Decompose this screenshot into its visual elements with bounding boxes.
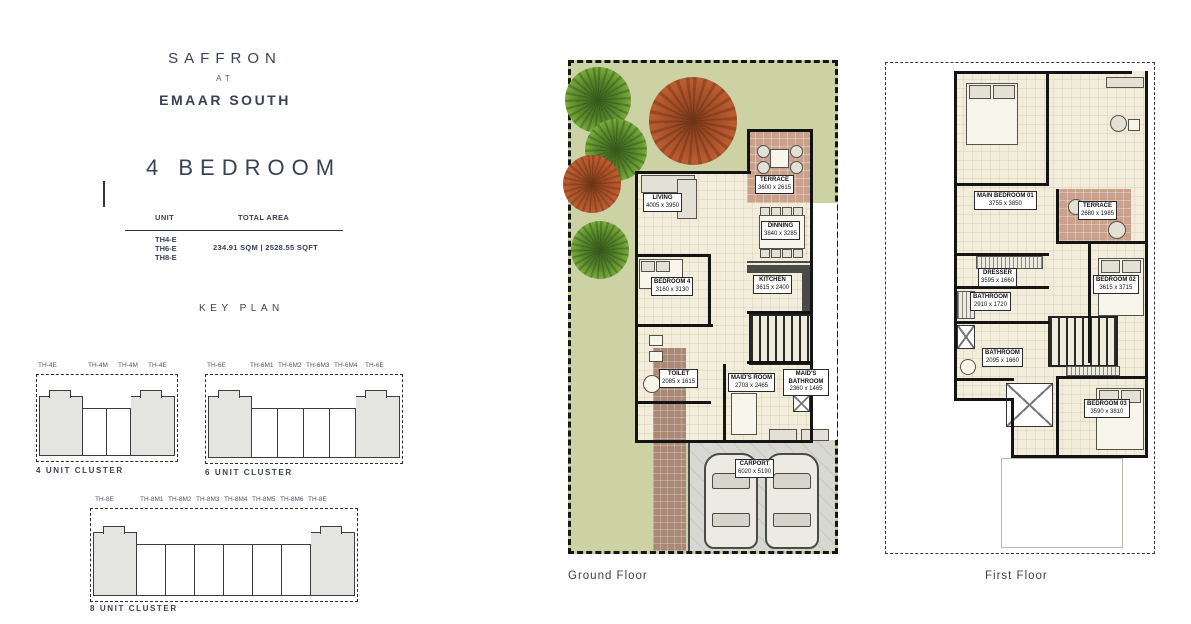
unit-row: TH6-E xyxy=(155,244,177,253)
wall xyxy=(1056,241,1148,244)
cluster-mid-unit xyxy=(83,408,107,456)
dining-chair xyxy=(793,207,803,216)
wall xyxy=(1056,376,1059,455)
unit-label: TH-6E xyxy=(207,362,226,369)
side-margin xyxy=(813,203,837,440)
unit-label: TH-8M1 xyxy=(140,496,163,503)
unit-label: TH-8M2 xyxy=(168,496,191,503)
room-label-carport: CARPORT 6020 x 5190 xyxy=(735,459,774,478)
first-floor-caption: First Floor xyxy=(985,570,1048,582)
wall xyxy=(635,440,813,443)
car-rear-window xyxy=(712,513,750,527)
pillow xyxy=(1101,260,1120,273)
brand-at: AT xyxy=(120,74,330,83)
unit-roof-tab xyxy=(320,526,342,534)
wall xyxy=(635,171,751,174)
wardrobe xyxy=(1066,366,1120,376)
shaft xyxy=(957,325,975,349)
total-area-value: 234.91 SQM | 2528.55 SQFT xyxy=(213,243,318,252)
room-label-main-bedroom: MAIN BEDROOM 01 3755 x 3850 xyxy=(974,191,1037,210)
unit-list: TH4-E TH6-E TH8-E xyxy=(155,235,177,262)
wall xyxy=(1056,376,1148,379)
brand-location: EMAAR SOUTH xyxy=(120,92,330,108)
cluster-mid-unit xyxy=(195,544,224,596)
kitchen-counter xyxy=(802,273,810,311)
cluster4-diagram xyxy=(36,374,178,462)
brand-block: SAFFRON AT EMAAR SOUTH xyxy=(120,50,330,108)
page-title: 4 BEDROOM xyxy=(146,155,341,181)
cluster8-caption: 8 UNIT CLUSTER xyxy=(90,604,178,613)
cluster8-diagram xyxy=(90,508,358,602)
unit-label: TH-8E xyxy=(95,496,114,503)
cluster-end-unit xyxy=(39,396,83,456)
ground-floor-plan: TERRACE 3600 x 2615 LIVING 4005 x 3950 D… xyxy=(568,60,838,554)
wall xyxy=(1088,241,1091,363)
pillow xyxy=(641,261,655,272)
cluster8-unit-labels: TH-8E TH-8M1 TH-8M2 TH-8M3 TH-8M4 TH-8M5… xyxy=(90,496,360,506)
wall xyxy=(1011,398,1014,458)
wall xyxy=(747,129,813,132)
dining-chair xyxy=(771,249,781,258)
room-label-toilet: TOILET 2085 x 1615 xyxy=(659,369,698,388)
room-label-kitchen: KITCHEN 3615 x 2400 xyxy=(753,275,792,294)
pillow xyxy=(993,85,1015,99)
terrace-table xyxy=(770,149,789,168)
cluster-mid-unit xyxy=(107,408,131,456)
cluster-end-unit xyxy=(356,396,400,458)
terrace-chair xyxy=(1108,221,1126,239)
cluster-end-unit xyxy=(131,396,175,456)
staircase xyxy=(1048,316,1118,367)
car-windshield xyxy=(773,473,811,489)
unit-label: TH-8M4 xyxy=(224,496,247,503)
wall xyxy=(1046,74,1049,186)
room-label-dresser: DRESSER 3595 x 1660 xyxy=(978,268,1017,287)
cluster6-unit-labels: TH-6E TH-6M1 TH-6M2 TH-6M3 TH-6M4 TH-6E xyxy=(205,362,405,372)
cluster8-footprint xyxy=(91,532,357,596)
sink-fixture xyxy=(649,351,663,362)
tree-icon xyxy=(563,155,621,213)
cluster-mid-unit xyxy=(330,408,356,458)
wall xyxy=(635,324,713,327)
tree-icon xyxy=(649,77,737,165)
wall xyxy=(747,261,810,263)
unit-label: TH-6M2 xyxy=(278,362,301,369)
wall xyxy=(954,321,1049,324)
cluster-end-unit xyxy=(311,532,355,596)
wall xyxy=(635,401,711,404)
vanity-counter xyxy=(1106,77,1144,88)
toilet-fixture xyxy=(649,335,663,346)
car-rear-window xyxy=(773,513,811,527)
cluster6-caption: 6 UNIT CLUSTER xyxy=(205,468,293,477)
tree-icon xyxy=(571,221,629,279)
unit-roof-tab xyxy=(140,390,162,398)
wall xyxy=(810,129,813,443)
unit-label: TH-4M xyxy=(118,362,138,369)
unit-row: TH4-E xyxy=(155,235,177,244)
wall xyxy=(688,440,690,551)
unit-label: TH-6E xyxy=(365,362,384,369)
terrace-chair xyxy=(757,145,770,158)
unit-roof-tab xyxy=(365,390,387,398)
room-label-bathroom: BATHROOM 2910 x 1720 xyxy=(970,292,1011,311)
wall xyxy=(954,71,957,401)
unit-label: TH-8M5 xyxy=(252,496,275,503)
cluster6-footprint xyxy=(206,396,402,458)
unit-roof-tab xyxy=(218,390,239,398)
cluster4-unit-labels: TH-4E TH-4M TH-4M TH-4E xyxy=(36,362,176,372)
void-below xyxy=(1001,458,1123,548)
maid-bed xyxy=(731,393,757,435)
wall xyxy=(747,361,812,364)
cluster-mid-unit xyxy=(304,408,330,458)
side-table xyxy=(1128,119,1140,131)
wall xyxy=(1011,455,1148,458)
cluster-mid-unit xyxy=(224,544,253,596)
cluster-mid-unit xyxy=(282,544,311,596)
cluster-end-unit xyxy=(208,396,252,458)
room-label-bathroom2: BATHROOM 2095 x 1660 xyxy=(982,348,1023,367)
cluster-mid-unit xyxy=(166,544,195,596)
staircase xyxy=(749,314,812,365)
wall xyxy=(708,254,711,326)
shaft xyxy=(793,395,810,412)
wall xyxy=(954,398,1014,401)
room-label-bedroom02: BEDROOM 02 3615 x 3715 xyxy=(1093,275,1139,294)
cluster6-diagram xyxy=(205,374,403,464)
ground-floor-caption: Ground Floor xyxy=(568,570,648,582)
pillow xyxy=(656,261,670,272)
unit-label: TH-4E xyxy=(148,362,167,369)
cluster-mid-unit xyxy=(253,544,282,596)
table-header-area: TOTAL AREA xyxy=(238,213,289,222)
table-header-unit: UNIT xyxy=(155,213,174,222)
dining-chair xyxy=(760,207,770,216)
cluster4-caption: 4 UNIT CLUSTER xyxy=(36,466,124,475)
wall xyxy=(1145,71,1148,458)
wall xyxy=(954,71,1132,74)
room-label-maids-room: MAID'S ROOM 2703 x 2465 xyxy=(728,373,775,392)
washbasin xyxy=(960,359,976,375)
dining-chair xyxy=(782,207,792,216)
dining-chair xyxy=(771,207,781,216)
cluster-mid-unit xyxy=(137,544,166,596)
cluster-mid-unit xyxy=(252,408,278,458)
unit-row: TH8-E xyxy=(155,253,177,262)
unit-label: TH-6M3 xyxy=(306,362,329,369)
room-label-bedroom03: BEDROOM 03 3590 x 3810 xyxy=(1084,399,1130,418)
unit-label: TH-8E xyxy=(308,496,327,503)
pillow xyxy=(1122,260,1141,273)
cluster-mid-unit xyxy=(278,408,304,458)
unit-label: TH-6M1 xyxy=(250,362,273,369)
wall xyxy=(635,254,711,257)
unit-roof-tab xyxy=(49,390,70,398)
wall xyxy=(747,311,812,314)
room-label-dinning: DINNING 3840 x 3285 xyxy=(761,221,800,240)
unit-label: TH-8M6 xyxy=(280,496,303,503)
dining-chair xyxy=(760,249,770,258)
dining-chair xyxy=(782,249,792,258)
table-rule xyxy=(125,230,343,231)
room-label-living: LIVING 4005 x 3950 xyxy=(643,193,682,212)
first-floor-plan: MAIN BEDROOM 01 3755 x 3850 TERRACE 2680… xyxy=(885,62,1155,554)
unit-label: TH-4E xyxy=(38,362,57,369)
unit-label: TH-6M4 xyxy=(334,362,357,369)
terrace-chair xyxy=(757,161,770,174)
dining-chair xyxy=(793,249,803,258)
floor-plan-page: SAFFRON AT EMAAR SOUTH 4 BEDROOM UNIT TO… xyxy=(0,0,1191,624)
unit-label: TH-8M3 xyxy=(196,496,219,503)
room-label-terrace: TERRACE 2680 x 1985 xyxy=(1078,201,1117,220)
unit-label: TH-4M xyxy=(88,362,108,369)
pillow xyxy=(969,85,991,99)
terrace-chair xyxy=(790,145,803,158)
wall xyxy=(954,378,1014,381)
unit-roof-tab xyxy=(103,526,124,534)
room-label-bedroom4: BEDROOM 4 3160 x 3130 xyxy=(651,277,693,296)
roof-cutout xyxy=(954,401,1011,458)
wall xyxy=(723,364,726,440)
wall xyxy=(954,253,1049,256)
kitchen-counter xyxy=(747,265,810,273)
cluster-end-unit xyxy=(93,532,137,596)
chair xyxy=(1110,115,1127,132)
title-tick-mark xyxy=(103,181,105,207)
key-plan-title: KEY PLAN xyxy=(199,303,284,314)
cluster4-footprint xyxy=(37,396,177,456)
unit-area-table: UNIT TOTAL AREA TH4-E TH6-E TH8-E 234.91… xyxy=(125,213,343,268)
wall xyxy=(954,183,1049,186)
terrace-chair xyxy=(790,161,803,174)
brand-name: SAFFRON xyxy=(120,50,330,67)
wall xyxy=(1056,189,1059,244)
wall xyxy=(747,129,750,174)
room-label-terrace: TERRACE 3600 x 2615 xyxy=(755,175,794,194)
room-label-maids-bathroom: MAID'S BATHROOM 2360 x 1465 xyxy=(783,369,829,396)
